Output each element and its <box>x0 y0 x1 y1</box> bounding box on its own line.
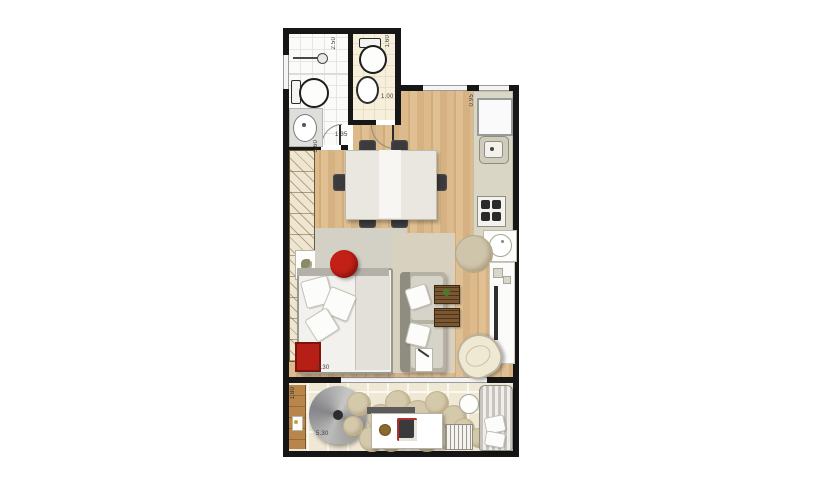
grate-mat <box>445 424 473 450</box>
dim-living-width: 5.30 <box>317 365 329 371</box>
side-table-round <box>459 394 479 414</box>
dim-living-length: 5.60 <box>313 140 319 152</box>
lounge-towel <box>484 430 506 448</box>
plate-icon <box>379 424 391 436</box>
grill-icon <box>397 418 417 441</box>
dim-kitchen-width: 0.95 <box>469 94 475 106</box>
dim-balcony-width: 5.30 <box>316 431 328 437</box>
dim-bath1-depth: 2.50 <box>331 37 337 49</box>
dim-bath2-door: 1.00 <box>381 94 393 100</box>
dim-bath2-depth: 1.60 <box>385 35 391 47</box>
floor-plan: 2.50 1.60 1.00 1.35 5.60 0.95 5.30 1.80 … <box>283 28 519 457</box>
dim-balcony-depth: 1.80 <box>290 387 296 399</box>
dim-bath1-door: 1.35 <box>335 132 347 138</box>
